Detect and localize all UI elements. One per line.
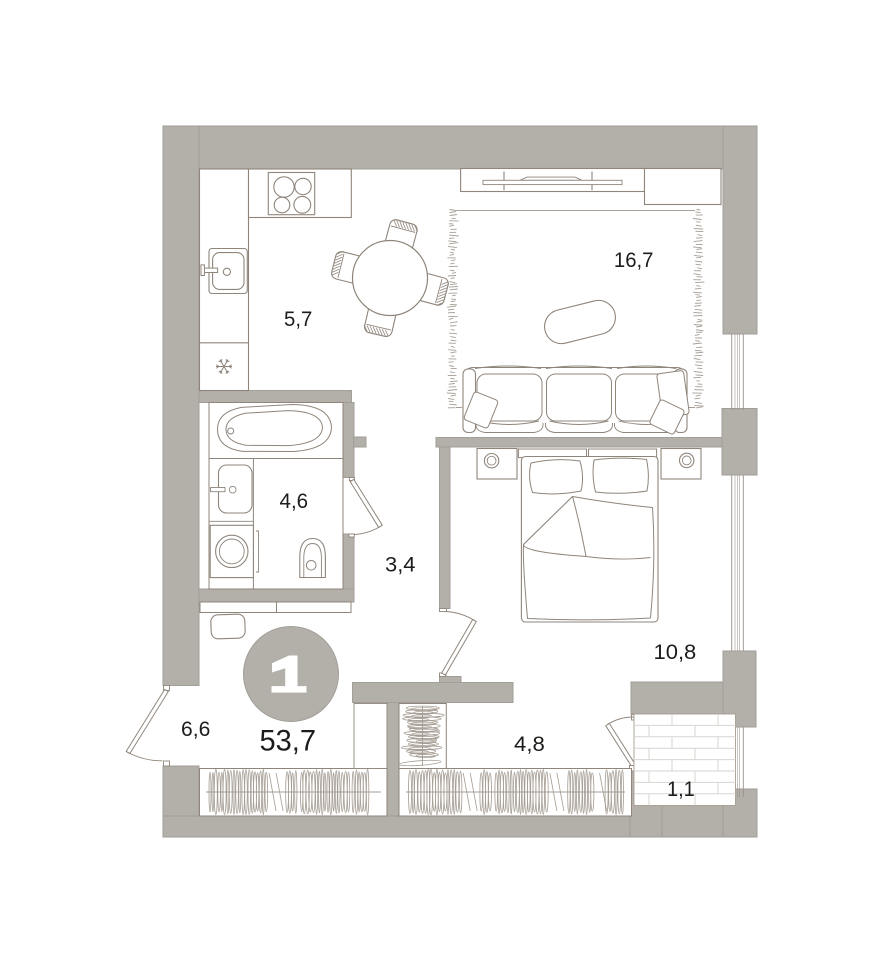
svg-text:10,8: 10,8: [654, 640, 697, 664]
svg-text:6,6: 6,6: [181, 717, 210, 741]
svg-text:5,7: 5,7: [284, 307, 312, 331]
svg-text:16,7: 16,7: [614, 248, 654, 272]
svg-text:4,6: 4,6: [280, 489, 309, 513]
svg-text:4,8: 4,8: [514, 732, 545, 756]
svg-text:3,4: 3,4: [385, 553, 416, 577]
svg-text:1,1: 1,1: [667, 777, 695, 801]
svg-text:53,7: 53,7: [260, 725, 317, 758]
